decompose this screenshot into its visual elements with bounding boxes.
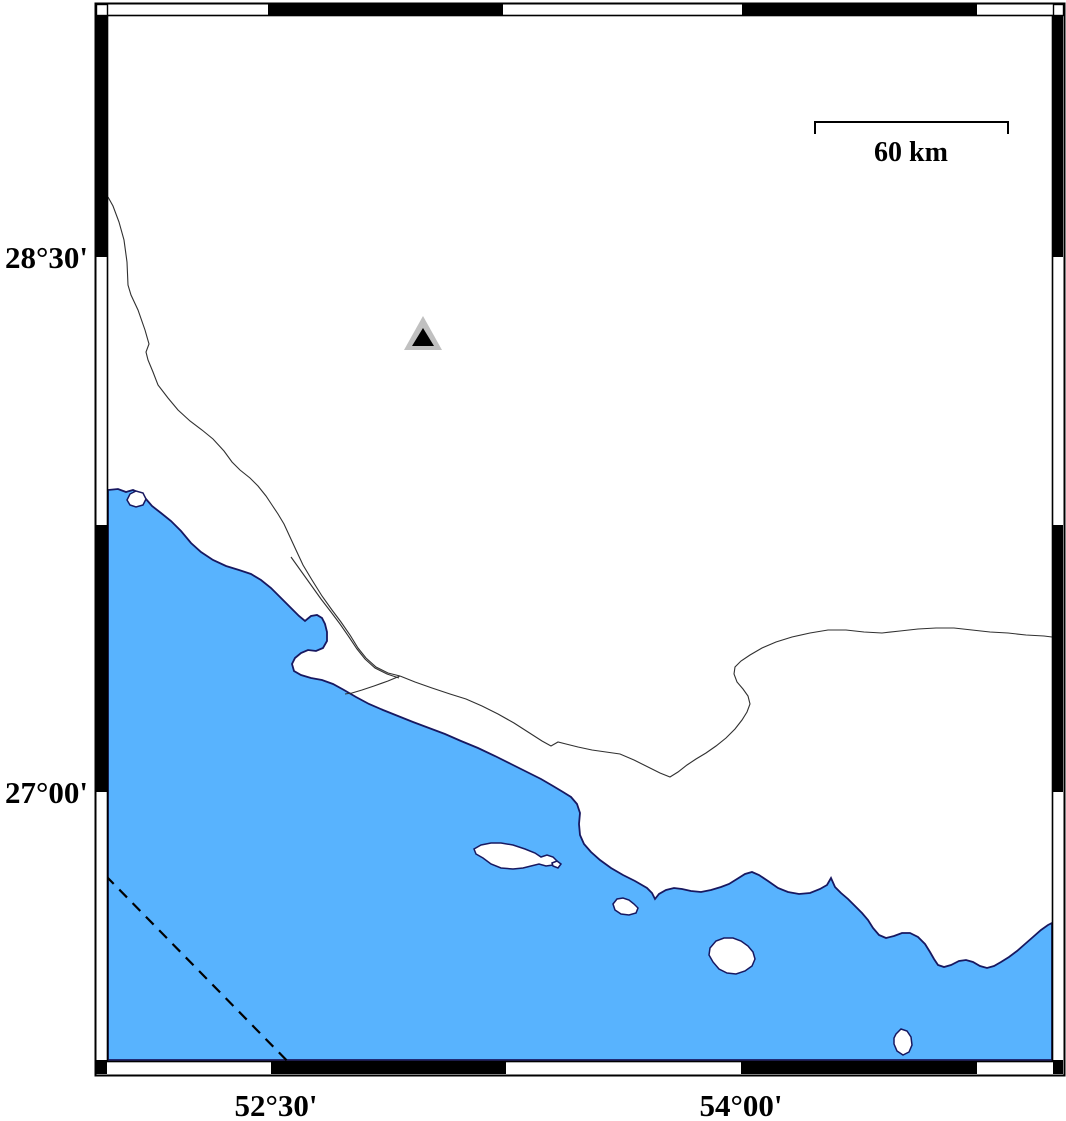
river-east <box>400 628 1052 777</box>
longitude-label-0: 52°30' <box>234 1088 317 1121</box>
map-canvas: 60 km 28°30'27°00'52°30'54°00' <box>0 0 1066 1121</box>
river-northwest-parallel <box>291 557 399 678</box>
frame-black-segment <box>268 4 503 16</box>
frame-black-segment <box>271 1061 506 1074</box>
sea-polygon <box>108 489 1052 1060</box>
coastal-islet <box>127 491 146 507</box>
station-triangle-marker <box>404 316 442 350</box>
latitude-label-1: 27°00' <box>5 775 88 810</box>
river-branch-to-coast <box>345 676 400 694</box>
scale-bar-bracket <box>815 122 1008 134</box>
frame-black-segment <box>1053 1060 1063 1074</box>
frame-corner-square <box>97 5 108 16</box>
map-content <box>106 197 1052 1076</box>
scale-bar-label: 60 km <box>874 137 948 168</box>
frame-black-segment <box>1053 525 1063 792</box>
frame-black-segment <box>96 1060 107 1074</box>
frame-black-segment <box>96 16 107 257</box>
scale-bar: 60 km <box>815 122 1008 168</box>
latitude-label-0: 28°30' <box>5 240 88 275</box>
frame-black-segment <box>741 1061 977 1074</box>
frame-black-segment <box>742 4 977 16</box>
frame-black-segment <box>1053 16 1063 257</box>
frame-black-segment <box>96 525 107 792</box>
longitude-label-1: 54°00' <box>699 1088 782 1121</box>
frame-corner-square <box>1054 5 1064 16</box>
